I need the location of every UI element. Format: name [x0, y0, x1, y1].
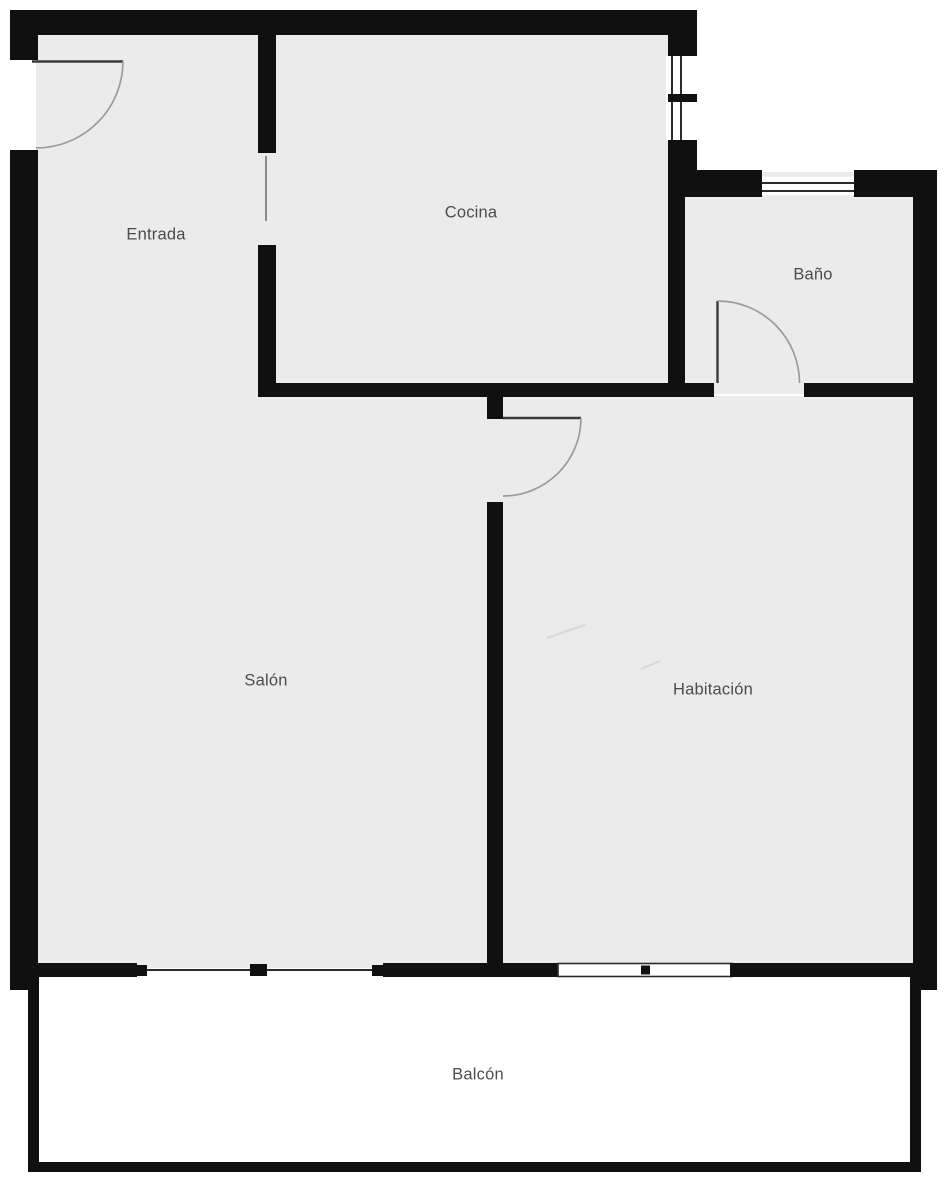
wall-bano-bottom-right [804, 383, 937, 397]
wall-salon-habitacion-stub [487, 395, 503, 419]
floor-plan-drawing [0, 0, 944, 1192]
wall-top [10, 10, 697, 35]
floor-plan-page: Entrada Cocina Baño Salón Habitación Bal… [0, 0, 944, 1192]
wall-bottom-left [30, 963, 137, 977]
wall-bottom-right [730, 963, 937, 977]
cocina-side-window-mullion [668, 94, 697, 102]
salon-balcony-window-cap [137, 965, 147, 976]
room-label-entrada: Entrada [126, 226, 185, 245]
wall-right [913, 170, 937, 990]
salon-balcony-window-cap [372, 965, 383, 976]
room-label-habitacion: Habitación [673, 681, 753, 700]
wall-left-upper [10, 10, 38, 60]
wall-bano-top-right [854, 170, 937, 197]
balcon-wall-left [28, 977, 39, 1172]
wall-cocina-right-bottom-block [668, 140, 697, 172]
room-label-salon: Salón [244, 672, 287, 691]
wall-entrada-cocina-upper [258, 33, 276, 153]
room-label-bano: Baño [793, 266, 832, 285]
wall-salon-habitacion-divider [487, 502, 503, 965]
habitacion-balcony-window-mullion [641, 966, 650, 975]
wall-cocina-bano-divider [668, 172, 685, 383]
salon-balcony-window-mullion [250, 964, 267, 976]
wall-cocina-bottom [258, 383, 714, 397]
balcon-wall-bottom [28, 1162, 921, 1172]
wall-bottom-middle [383, 963, 560, 977]
room-label-balcon: Balcón [452, 1066, 504, 1085]
room-label-cocina: Cocina [445, 204, 498, 223]
bano-top-window-glass [762, 177, 854, 195]
wall-bano-top-left [668, 170, 762, 197]
wall-left-main [10, 150, 38, 990]
wall-entrada-cocina-lower [258, 245, 276, 397]
wall-cocina-right-top-block [668, 33, 697, 56]
balcon-wall-right [910, 977, 921, 1167]
